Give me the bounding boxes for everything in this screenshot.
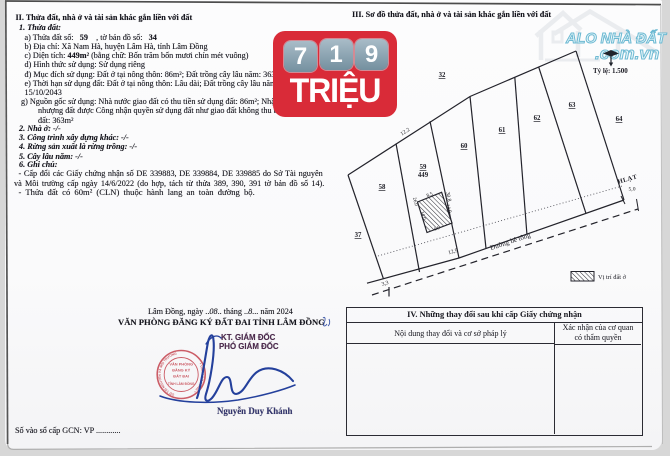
svg-text:VĂN PHÒNG: VĂN PHÒNG — [169, 362, 193, 367]
svg-text:TỈNH LÂM ĐỒNG: TỈNH LÂM ĐỒNG — [168, 381, 195, 386]
svg-text:ĐĂNG KÝ: ĐĂNG KÝ — [172, 368, 190, 373]
svg-text:ĐẤT ĐAI: ĐẤT ĐAI — [173, 374, 189, 379]
